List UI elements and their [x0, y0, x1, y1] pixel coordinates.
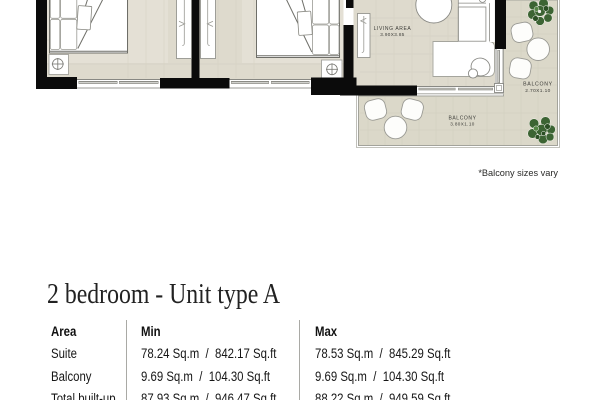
svg-text:3.90X3.85: 3.90X3.85: [380, 32, 405, 37]
svg-text:2.70X1.10: 2.70X1.10: [525, 88, 550, 94]
svg-text:BALCONY: BALCONY: [523, 82, 553, 88]
svg-text:3.80X1.10: 3.80X1.10: [450, 121, 475, 126]
